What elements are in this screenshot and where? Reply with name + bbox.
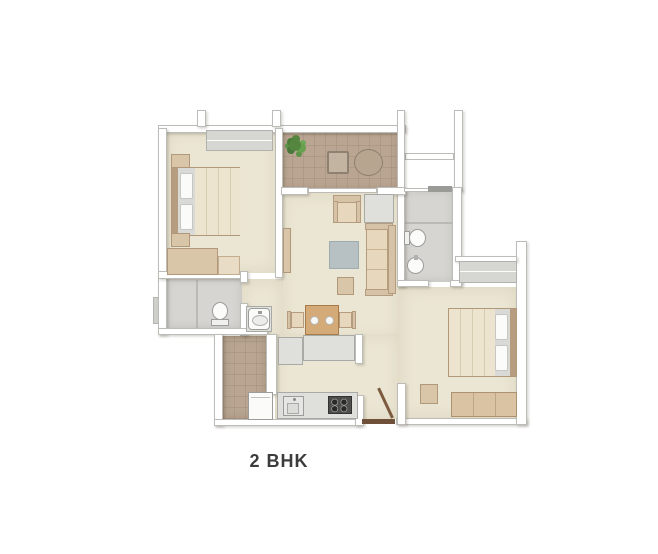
wash-basin — [248, 308, 270, 330]
stool — [420, 384, 438, 404]
bed-1-pillow-b — [180, 204, 193, 230]
duct-ledge — [405, 153, 454, 160]
wall-bottom-left — [214, 419, 361, 426]
wall-stub-a — [197, 110, 206, 127]
wall-bath1-bottom-a — [397, 280, 429, 287]
dining-table — [305, 305, 339, 335]
wall-kitchen-cap-top — [355, 334, 363, 364]
wall-bedroom1-right — [275, 128, 283, 278]
bathroom-1-partition — [404, 222, 452, 224]
toilet-1 — [404, 228, 427, 247]
balcony-round-table — [354, 149, 383, 176]
bathroom-1-threshold — [428, 186, 452, 192]
bench — [451, 392, 517, 417]
balcony-square-table — [327, 151, 349, 174]
washing-machine — [248, 392, 273, 420]
wall-utility-right — [266, 334, 277, 395]
armchair — [333, 195, 361, 225]
sink-basin — [287, 403, 299, 414]
tv-unit — [283, 228, 291, 273]
entry-threshold — [362, 419, 395, 424]
wall-duct-right — [454, 110, 463, 192]
kitchen-platform-a — [278, 337, 303, 365]
dining-chair-left — [287, 311, 304, 329]
wall-left — [158, 128, 167, 335]
washing-machine-lid — [251, 397, 270, 398]
kitchen-platform-b — [303, 335, 355, 361]
sofa-backrest — [388, 225, 396, 294]
bathroom-2-partition — [196, 280, 198, 328]
wall-balcony-living-a — [281, 187, 308, 195]
bed-1 — [171, 167, 240, 236]
sofa-cushions — [366, 229, 388, 290]
wardrobe-step — [218, 256, 240, 275]
bed-2-headboard — [510, 309, 516, 376]
plate-right — [325, 316, 334, 325]
bathroom-2-floor — [166, 278, 242, 328]
bed-2-pillow-b — [495, 345, 508, 371]
bedroom-2-window — [459, 261, 517, 283]
sink-faucet — [293, 398, 296, 401]
balcony-sliding-door — [308, 188, 377, 193]
toilet-2-tank — [211, 319, 229, 326]
wall-stub-b — [272, 110, 281, 127]
bed-2-pillow-a — [495, 314, 508, 340]
stove — [328, 396, 352, 414]
chair-left-seat — [291, 312, 304, 328]
bed-1-duvet — [195, 168, 241, 235]
toilet-2 — [211, 302, 229, 327]
nightstand-bottom — [171, 233, 190, 247]
wash-basin-faucet — [258, 311, 262, 314]
armchair-seat — [337, 202, 357, 223]
side-table — [364, 194, 394, 223]
wall-bedroom2-right — [516, 241, 527, 425]
wall-utility-left — [214, 334, 223, 426]
plate-left — [310, 316, 319, 325]
bed-1-pillow-a — [180, 173, 193, 199]
dining-chair-right — [339, 311, 356, 329]
bed-2-duvet — [449, 309, 495, 376]
plan-title: 2 BHK — [219, 451, 339, 472]
kitchen-sink — [283, 396, 304, 416]
sink-1 — [407, 255, 425, 274]
toilet-2-bowl — [212, 302, 228, 320]
sink-1-spout — [414, 255, 418, 260]
ottoman — [337, 277, 354, 295]
wardrobe — [167, 248, 218, 275]
wash-basin-bowl — [252, 315, 268, 326]
bed-2 — [448, 308, 517, 377]
toilet-1-bowl — [409, 229, 426, 247]
bedroom-1-window — [206, 130, 273, 151]
chair-right-seat — [339, 312, 352, 328]
wall-balcony-right — [397, 110, 405, 287]
floorplan-2bhk: 2 BHK — [0, 0, 658, 554]
potted-plant-icon — [289, 139, 301, 151]
rug — [329, 241, 359, 269]
nightstand-top — [171, 154, 190, 168]
chair-right-back — [352, 311, 356, 329]
sofa — [365, 223, 396, 296]
wall-bedroom2-left — [397, 383, 406, 425]
wall-bath1-top — [404, 188, 429, 192]
wall-bottom-right — [396, 418, 527, 425]
wall-bath2-door-corner — [240, 271, 248, 283]
